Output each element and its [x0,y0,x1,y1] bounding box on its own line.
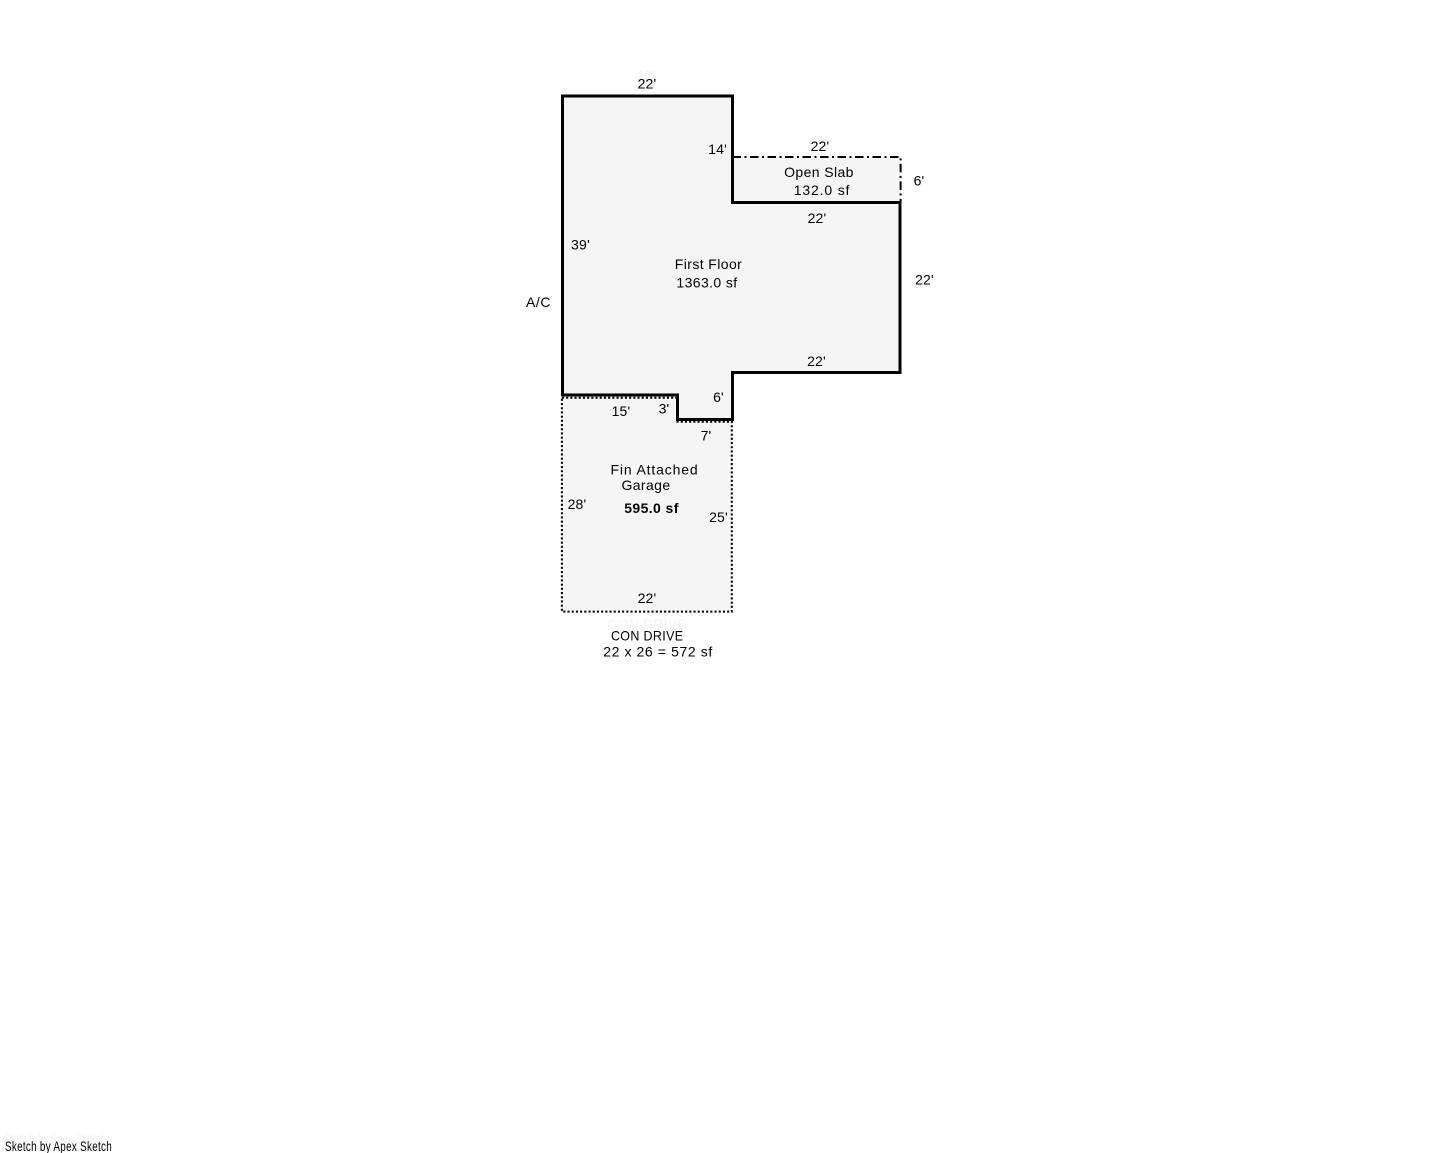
svg-text:15': 15' [612,403,631,419]
svg-text:First Floor: First Floor [675,256,742,272]
svg-text:Garage: Garage [621,477,670,493]
svg-text:25': 25' [709,509,728,525]
svg-text:14': 14' [708,141,727,157]
svg-text:Sketch by Apex Sketch: Sketch by Apex Sketch [5,1138,112,1153]
svg-text:22': 22' [808,210,827,226]
svg-text:7': 7' [701,428,712,444]
svg-text:28': 28' [568,496,587,512]
svg-text:22': 22' [915,272,934,288]
svg-text:595.0 sf: 595.0 sf [624,500,679,516]
svg-text:CON DRIVE: CON DRIVE [611,628,684,644]
svg-text:132.0 sf: 132.0 sf [794,182,851,198]
svg-text:22': 22' [638,76,657,92]
svg-text:39': 39' [571,237,590,253]
svg-text:Fin Attached: Fin Attached [610,462,698,478]
svg-text:22': 22' [811,138,830,154]
svg-text:Open Slab: Open Slab [784,164,854,180]
svg-text:22 x 26 = 572 sf: 22 x 26 = 572 sf [603,644,713,660]
svg-text:3': 3' [659,401,670,417]
svg-text:1363.0 sf: 1363.0 sf [676,275,737,291]
svg-text:22': 22' [638,590,657,606]
svg-text:6': 6' [713,389,724,405]
svg-text:22': 22' [807,353,826,369]
svg-text:A/C: A/C [526,294,551,310]
svg-text:6': 6' [914,173,925,189]
